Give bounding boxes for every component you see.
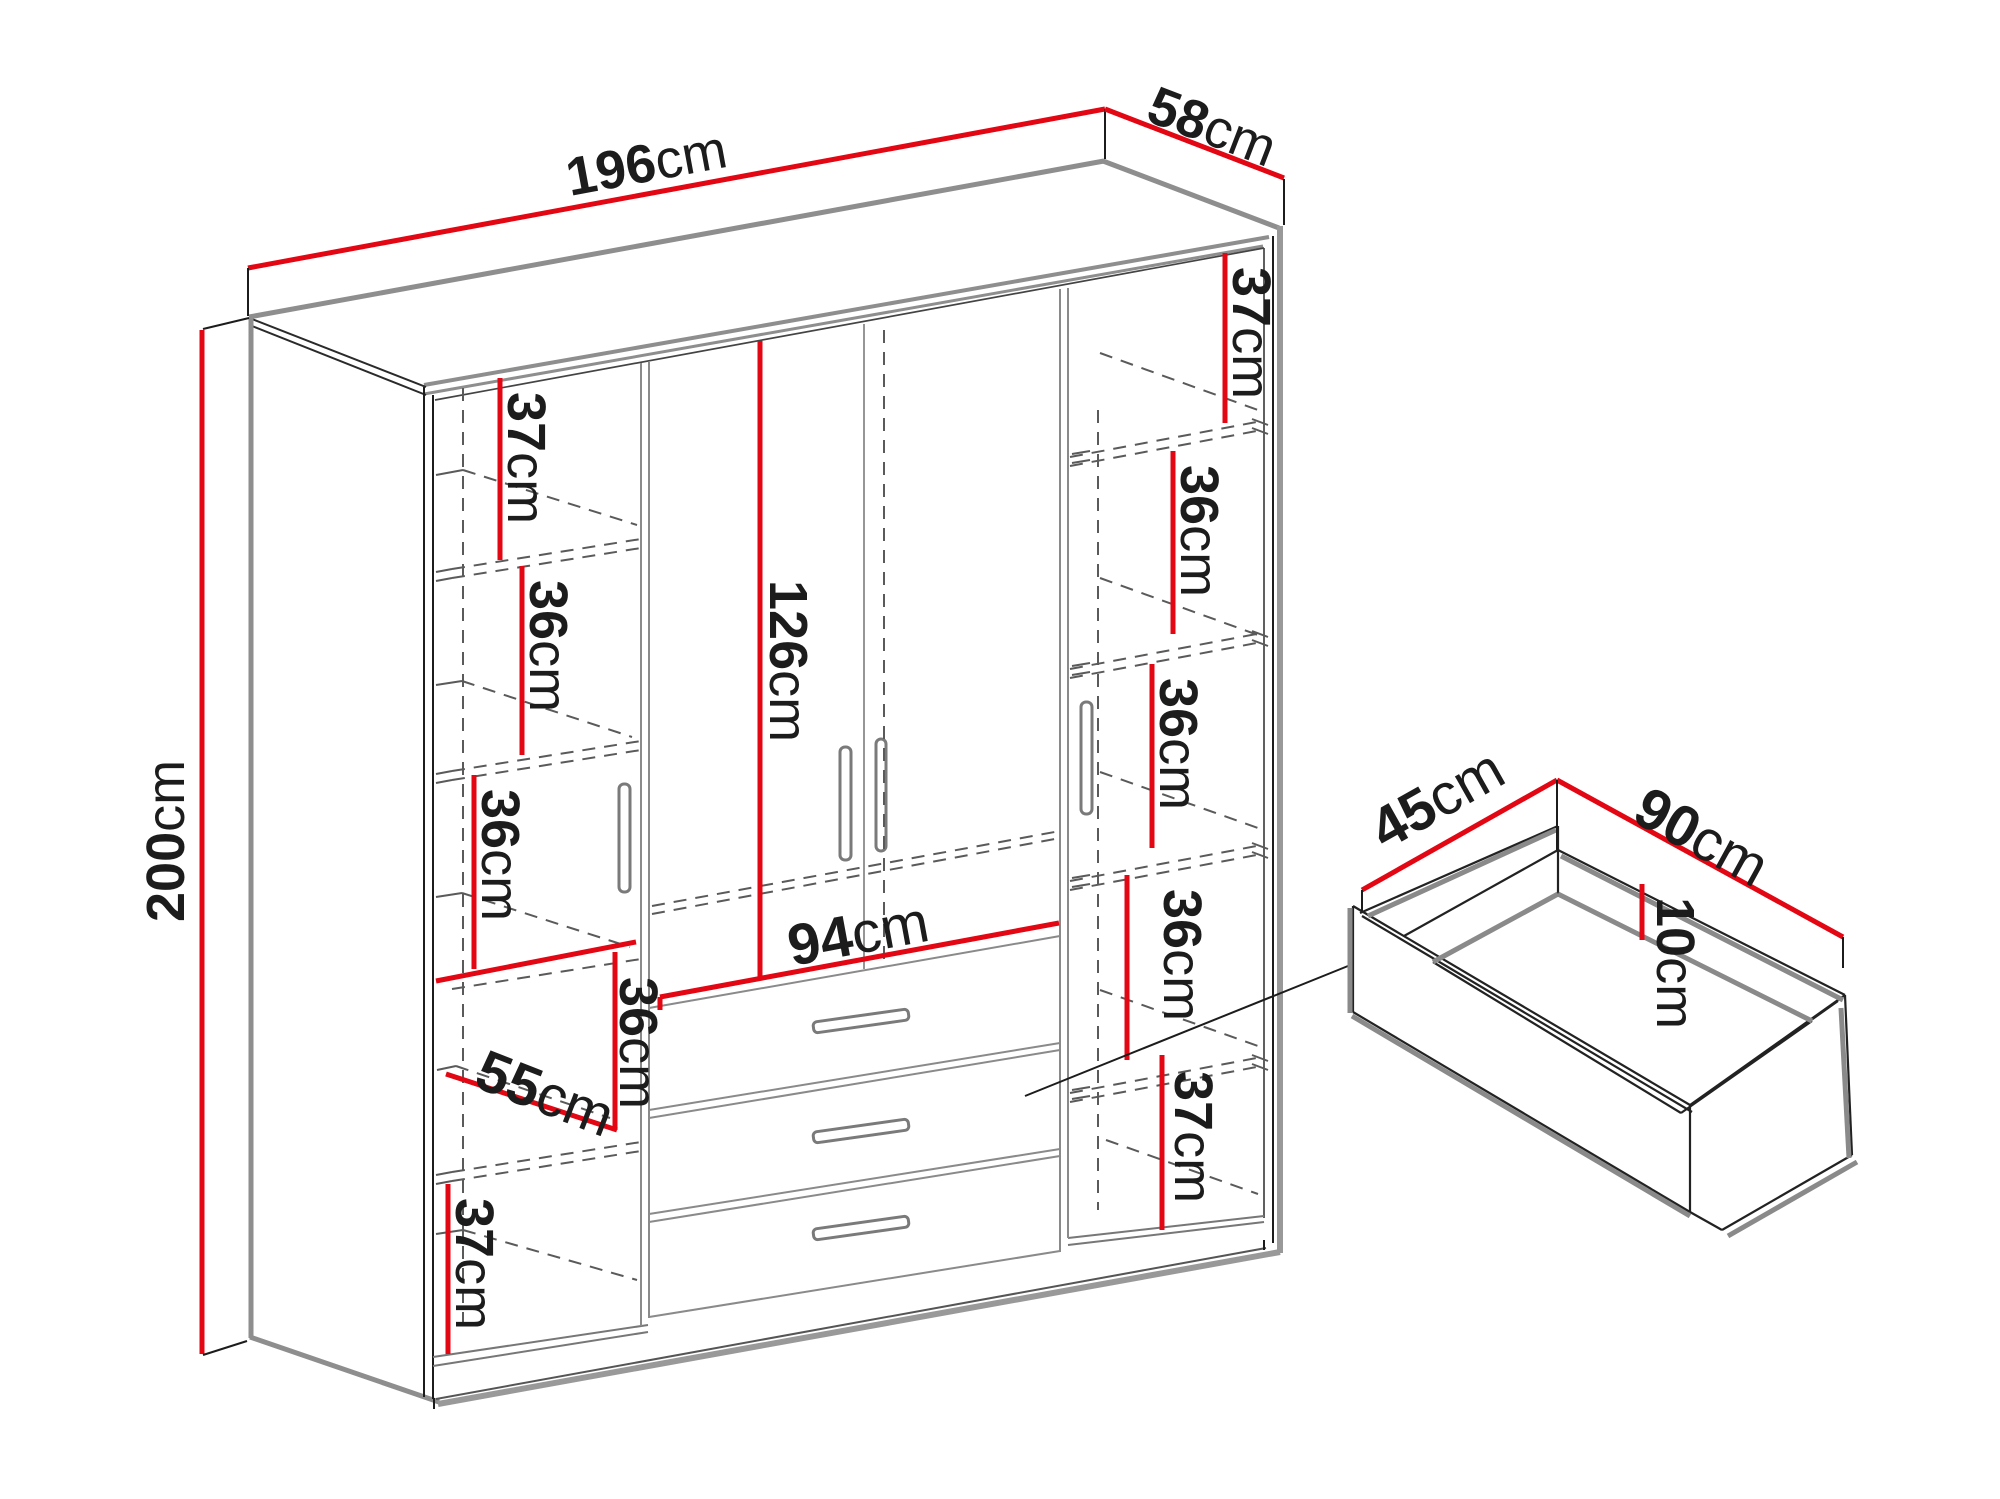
svg-text:200cm: 200cm	[136, 760, 196, 922]
svg-text:36cm: 36cm	[1169, 465, 1229, 597]
svg-text:10cm: 10cm	[1645, 897, 1705, 1029]
svg-text:37cm: 37cm	[1221, 267, 1281, 399]
svg-text:37cm: 37cm	[444, 1198, 504, 1330]
svg-text:36cm: 36cm	[470, 789, 530, 921]
svg-text:37cm: 37cm	[1163, 1071, 1223, 1203]
svg-text:126cm: 126cm	[758, 580, 818, 742]
svg-text:36cm: 36cm	[1148, 678, 1208, 810]
svg-text:37cm: 37cm	[496, 392, 556, 524]
svg-text:36cm: 36cm	[518, 580, 578, 712]
svg-text:36cm: 36cm	[1152, 889, 1212, 1021]
